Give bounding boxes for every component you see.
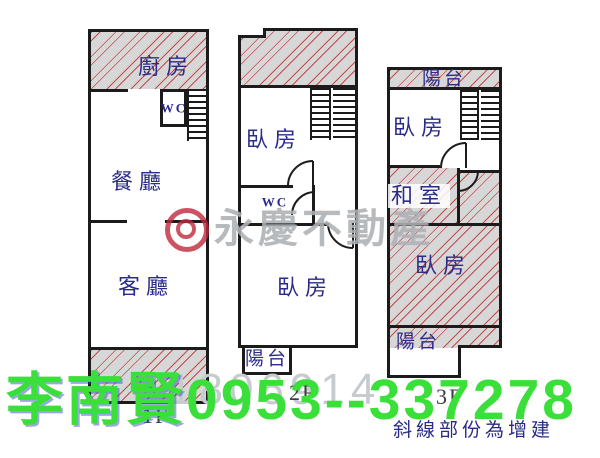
contact-overlay: 李南賢0953--337278	[6, 372, 577, 429]
door-arc-3f-tatami	[458, 171, 478, 191]
door-arc-2f-bedroom-upper	[288, 161, 313, 186]
door-arc-3f-bedroom-upper	[441, 143, 466, 168]
agent-name: 李南賢	[6, 368, 186, 432]
floor-plan-image: { "floor1": { "label": "1F", "kitchen": …	[0, 0, 600, 458]
agency-watermark: 永慶不動產	[214, 209, 434, 249]
agency-logo-icon	[163, 206, 211, 254]
logo-inner-ring	[176, 219, 196, 239]
agent-phone: 0953--337278	[186, 368, 577, 432]
